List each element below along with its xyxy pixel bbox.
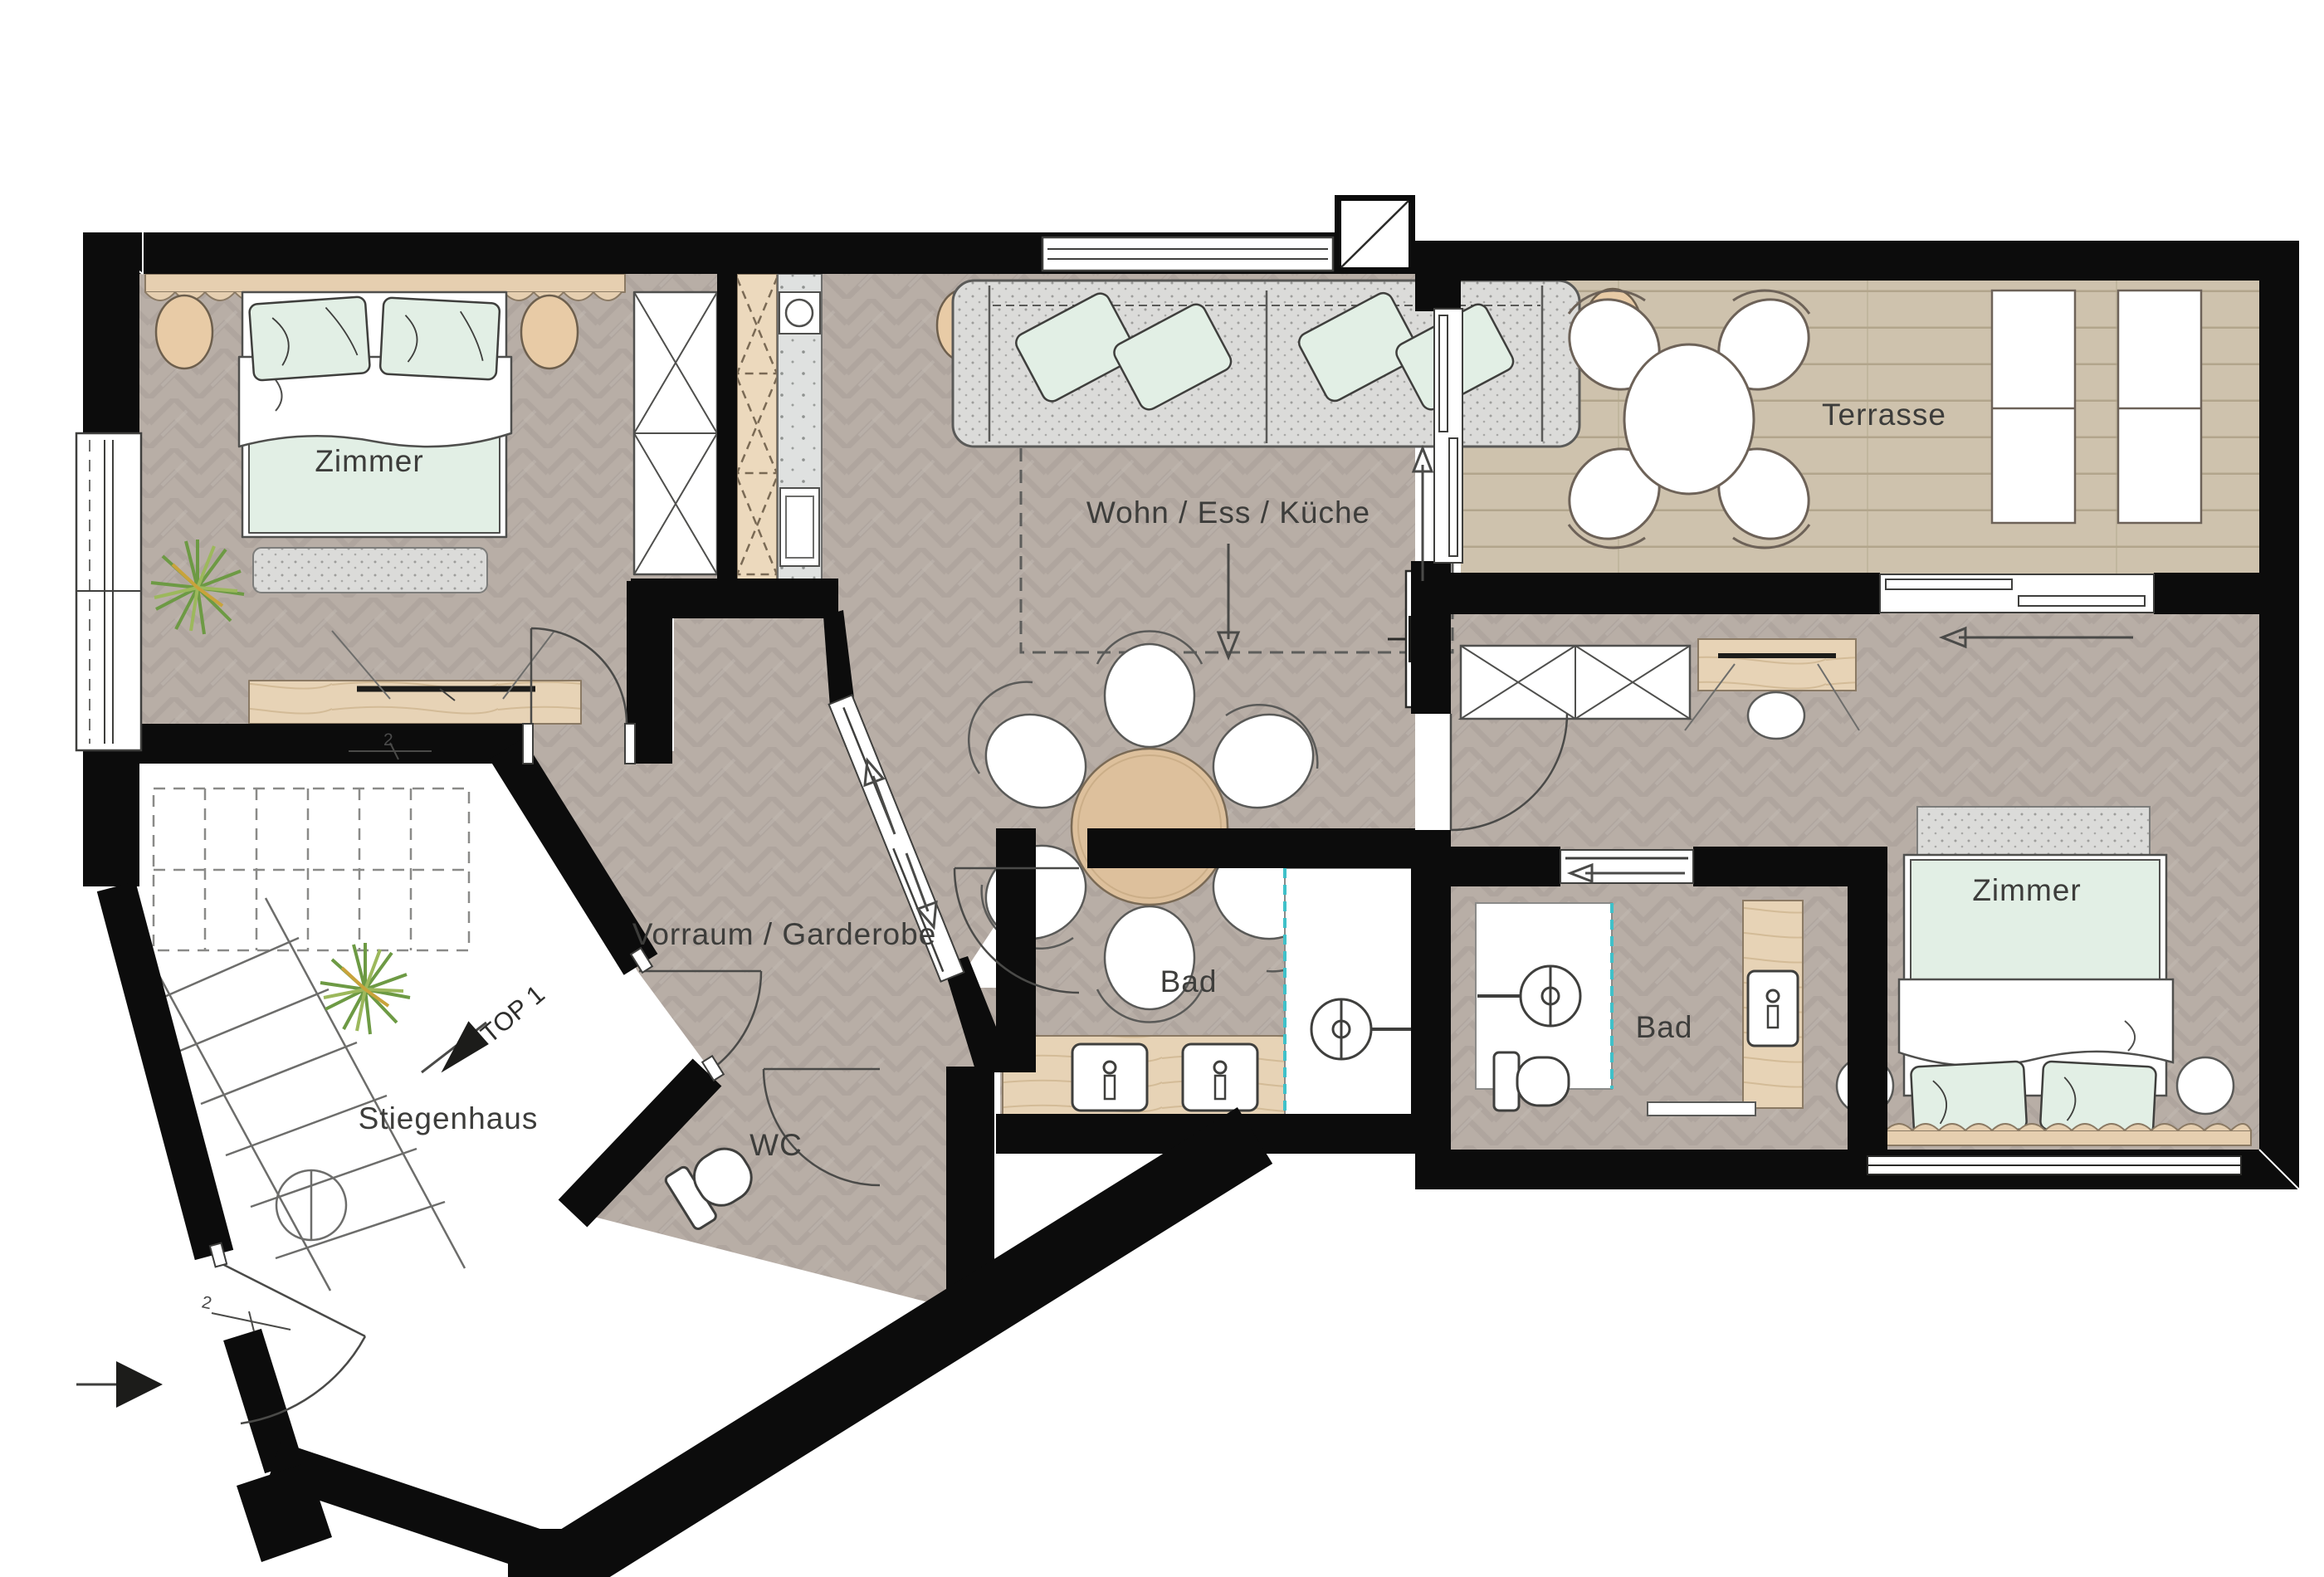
stairs-upper-dashed xyxy=(154,788,469,950)
shower-mitte xyxy=(1285,868,1415,1116)
wall-terrasse-right xyxy=(2259,241,2299,613)
wall-bad-rechts-top-a xyxy=(1451,847,1560,886)
sliding-door-bad-rechts xyxy=(1560,850,1693,883)
pillow xyxy=(380,297,500,379)
desk-chair xyxy=(1748,692,1804,739)
kitchen-tall-cabinets xyxy=(737,274,777,581)
wall-terrasse-bottom-left xyxy=(1451,573,1880,614)
wall-wohn-right-mid xyxy=(1411,561,1451,714)
pillow xyxy=(249,296,370,381)
kitchen-counter xyxy=(778,274,822,581)
dining-table xyxy=(1072,749,1228,905)
terrace-table xyxy=(1624,344,1754,494)
label-zimmer-left: Zimmer xyxy=(315,444,423,478)
mark-door-entry: 2 xyxy=(200,1292,213,1313)
label-zimmer-right: Zimmer xyxy=(1972,873,2081,907)
wall-bad-mitte-top xyxy=(1087,828,1415,868)
wall-terrasse-bottom-right xyxy=(2154,573,2299,614)
wall-wohn-right-top xyxy=(1415,241,1461,311)
entry-arrow xyxy=(76,1361,163,1408)
wall-terrasse-top xyxy=(1415,241,2299,281)
toilet-icon xyxy=(1494,1052,1569,1111)
label-vorraum: Vorraum / Garderobe xyxy=(632,917,937,951)
wall-zimmer-left-bottom xyxy=(83,724,531,764)
bedside-stool-right xyxy=(2177,1057,2234,1114)
kitchen xyxy=(737,274,822,581)
wall-kitchen-divider xyxy=(717,274,737,581)
label-bad-rechts: Bad xyxy=(1636,1010,1693,1044)
window-left xyxy=(76,433,141,750)
mark-door-zimmer: 2 xyxy=(383,730,393,749)
wall-bad-rechts-top-b xyxy=(1693,847,1851,886)
bedside-table-left xyxy=(156,295,212,369)
bath-bench xyxy=(1648,1102,1755,1116)
wall-kitchen-bottom xyxy=(631,579,838,618)
sink-icon xyxy=(1072,1044,1147,1111)
bedside-table-right xyxy=(521,295,578,369)
label-top1: TOP 1 xyxy=(476,979,550,1049)
bed-left xyxy=(239,292,511,537)
wall-foot-2 xyxy=(508,1529,581,1577)
bath-counter-right xyxy=(1743,901,1803,1108)
sink-icon xyxy=(1748,971,1798,1046)
duvet xyxy=(1899,979,2173,1066)
sofa xyxy=(953,281,1579,447)
wall-right-outer xyxy=(2259,613,2299,1189)
window-wohn-top xyxy=(1042,237,1333,271)
floor-wc xyxy=(581,1069,948,1307)
plant-icon xyxy=(320,943,410,1034)
wall-bad-zimmer-divider xyxy=(1848,847,1887,1154)
entry-arrow-icon xyxy=(116,1361,163,1408)
label-wc: WC xyxy=(749,1128,803,1162)
floorplan-drawing: Zimmer Wohn / Ess / Küche Terrasse Vorra… xyxy=(0,0,2324,1577)
wardrobe-zimmer-left xyxy=(634,292,717,574)
label-terrasse: Terrasse xyxy=(1822,398,1946,432)
wall-wohn-right-low xyxy=(1411,830,1451,1154)
sink-icon xyxy=(1183,1044,1257,1111)
bed-bench xyxy=(253,548,487,593)
label-bad-mitte: Bad xyxy=(1160,964,1218,998)
wardrobe-zimmer-right xyxy=(1461,646,1690,719)
curtain-icon xyxy=(1859,1124,2251,1145)
floorplan-page: Zimmer Wohn / Ess / Küche Terrasse Vorra… xyxy=(0,0,2324,1577)
wall-vorraum-bad xyxy=(996,828,1036,1072)
label-stiegenhaus: Stiegenhaus xyxy=(359,1101,539,1135)
wall-left-lower xyxy=(83,747,139,886)
headboard xyxy=(1917,807,2150,855)
label-wohn: Wohn / Ess / Küche xyxy=(1086,496,1370,530)
wall-left-upper xyxy=(83,232,139,436)
